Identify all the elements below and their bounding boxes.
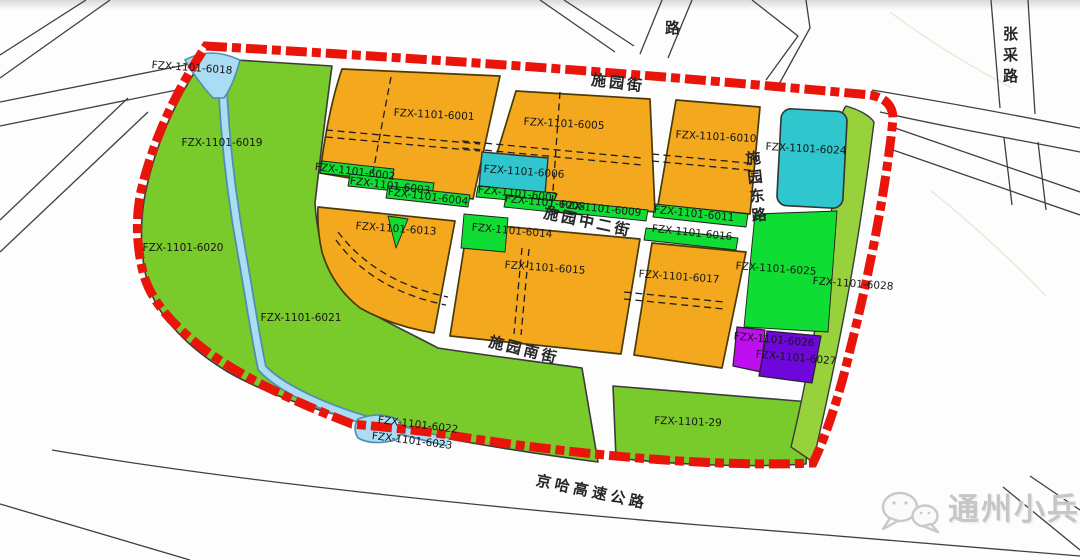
top-fade-bar [0,0,1080,10]
planning-map: 施园街 施园中二街 施园南街 京哈高速公路 施园东路 张采路 路 FZX-110… [0,0,1080,560]
street-label-partial-road: 路 [663,19,681,35]
parcel-fzx-1101-6024-region [776,108,847,208]
parcel-label: FZX-1101-6020 [143,242,224,254]
watermark-text: 通州小兵 [948,492,1080,528]
street-label-zhangcai-lu: 张采路 [1001,26,1019,89]
map-canvas: 施园街 施园中二街 施园南街 京哈高速公路 施园东路 张采路 路 FZX-110… [0,0,1080,560]
parcel-label: FZX-1101-6021 [261,312,342,324]
parcel-label: FZX-1101-29 [654,415,722,429]
parcel-label: FZX-1101-6019 [182,137,263,149]
